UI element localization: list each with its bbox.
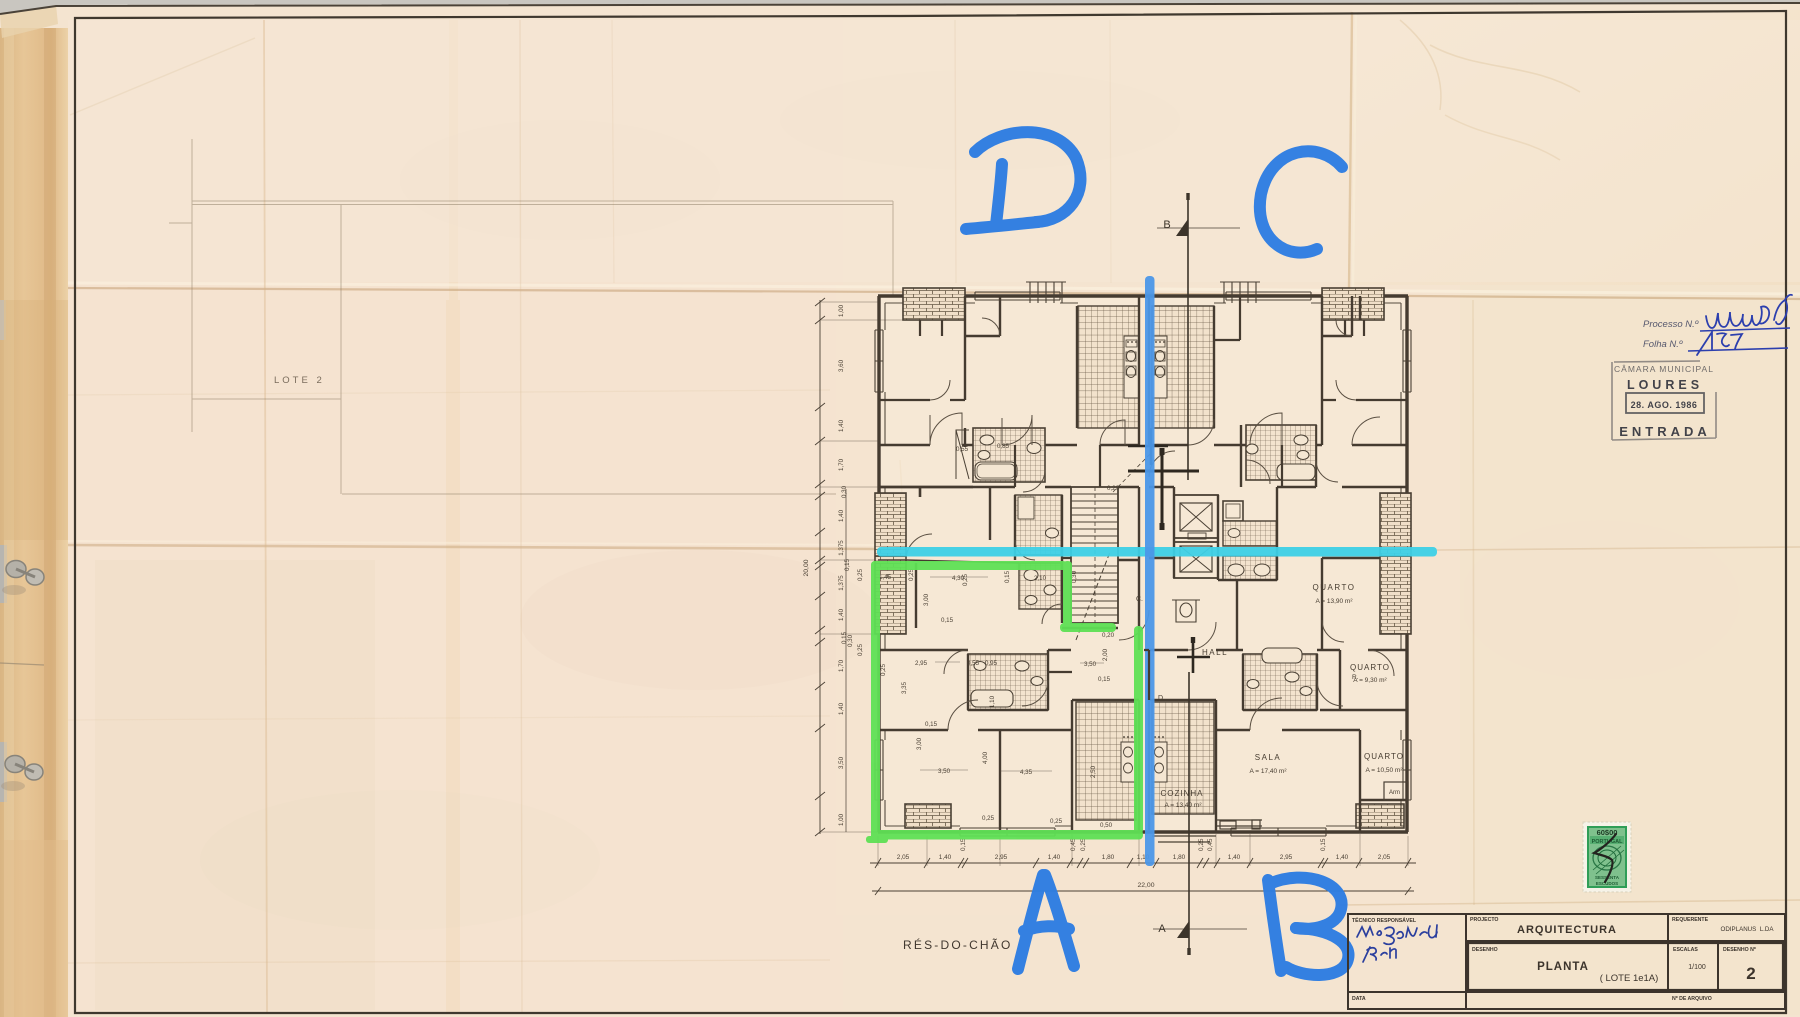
svg-text:0,25: 0,25 [857, 568, 864, 581]
svg-text:SALA: SALA [1255, 753, 1281, 762]
svg-text:4,00: 4,00 [982, 751, 989, 764]
svg-text:0,55: 0,55 [956, 446, 969, 453]
svg-text:1,40: 1,40 [838, 702, 845, 715]
svg-text:0,25: 0,25 [880, 663, 887, 676]
svg-text:2,05: 2,05 [897, 854, 910, 861]
svg-text:2,10: 2,10 [1034, 575, 1047, 582]
svg-text:1,375: 1,375 [838, 540, 845, 556]
svg-text:1,80: 1,80 [1102, 854, 1115, 861]
svg-text:PLANTA: PLANTA [1537, 961, 1589, 973]
svg-text:ESCUDOS: ESCUDOS [1596, 881, 1618, 886]
svg-text:1,40: 1,40 [1228, 854, 1241, 861]
svg-text:1,70: 1,70 [838, 659, 845, 672]
svg-text:DESENHO Nº: DESENHO Nº [1723, 947, 1756, 953]
svg-text:3,35: 3,35 [901, 681, 908, 694]
svg-text:3,50: 3,50 [838, 756, 845, 769]
svg-text:A: A [1158, 923, 1166, 935]
svg-text:QUARTO: QUARTO [1313, 583, 1356, 592]
svg-text:A = 10,50 m²: A = 10,50 m² [1365, 767, 1403, 774]
svg-text:4,35: 4,35 [1020, 769, 1033, 776]
svg-text:A = 13,90 m²: A = 13,90 m² [1315, 598, 1353, 605]
svg-text:0,25: 0,25 [908, 568, 915, 581]
svg-text:QUARTO: QUARTO [1350, 663, 1390, 672]
svg-text:28. AGO. 1986: 28. AGO. 1986 [1631, 400, 1698, 410]
svg-text:QUARTO: QUARTO [1364, 752, 1404, 761]
svg-text:ODIPLANUS L.DA: ODIPLANUS L.DA [1721, 926, 1775, 933]
svg-text:0,20: 0,20 [1107, 485, 1120, 492]
svg-text:Folha N.º: Folha N.º [1643, 339, 1683, 350]
svg-text:2,05: 2,05 [1378, 854, 1391, 861]
svg-text:2: 2 [1746, 964, 1755, 983]
svg-text:0,15: 0,15 [1098, 676, 1111, 683]
svg-text:R.: R. [1352, 674, 1359, 681]
svg-text:1,40: 1,40 [838, 608, 845, 621]
svg-text:Arm: Arm [1389, 790, 1400, 796]
svg-text:22,00: 22,00 [1137, 882, 1154, 889]
svg-text:0,55: 0,55 [967, 660, 980, 667]
svg-text:0,30: 0,30 [841, 485, 848, 498]
svg-text:2,00: 2,00 [1102, 648, 1109, 661]
svg-text:3,00: 3,00 [916, 737, 923, 750]
svg-text:1,10: 1,10 [989, 695, 996, 708]
svg-text:0,25: 0,25 [857, 643, 864, 656]
svg-text:0,15: 0,15 [1320, 838, 1327, 851]
svg-text:D.: D. [1158, 695, 1165, 702]
svg-text:1,00: 1,00 [838, 813, 845, 826]
svg-text:A = 13,40 m²: A = 13,40 m² [1164, 802, 1202, 809]
svg-text:0,30: 0,30 [1071, 570, 1078, 583]
svg-text:1,40: 1,40 [1048, 854, 1061, 861]
svg-text:0,25: 0,25 [1080, 838, 1087, 851]
svg-text:2,95: 2,95 [1280, 854, 1293, 861]
svg-text:REQUERENTE: REQUERENTE [1672, 917, 1709, 923]
svg-text:COZINHA: COZINHA [1161, 789, 1204, 798]
svg-text:ENTRADA: ENTRADA [1619, 424, 1711, 439]
svg-text:0,15: 0,15 [960, 838, 967, 851]
svg-text:0,45: 0,45 [1207, 838, 1214, 851]
svg-text:0,15: 0,15 [844, 558, 851, 571]
svg-text:0,15: 0,15 [925, 721, 938, 728]
svg-text:0,25: 0,25 [982, 815, 995, 822]
svg-text:Processo N.º: Processo N.º [1643, 319, 1699, 330]
svg-text:1/100: 1/100 [1688, 964, 1706, 971]
svg-text:DESENHO: DESENHO [1472, 947, 1498, 953]
svg-text:3,50: 3,50 [938, 768, 951, 775]
svg-text:TÉCNICO RESPONSÁVEL: TÉCNICO RESPONSÁVEL [1352, 916, 1417, 924]
svg-text:LOURES: LOURES [1627, 378, 1703, 392]
svg-text:1,40: 1,40 [838, 419, 845, 432]
svg-text:0,15: 0,15 [941, 617, 954, 624]
svg-text:PROJECTO: PROJECTO [1470, 917, 1498, 923]
svg-text:1,40: 1,40 [1336, 854, 1349, 861]
svg-text:0,20: 0,20 [1102, 632, 1115, 639]
svg-text:0,45: 0,45 [1070, 838, 1077, 851]
svg-text:2,50: 2,50 [1090, 765, 1097, 778]
svg-text:0,15: 0,15 [1004, 570, 1011, 583]
svg-text:DATA: DATA [1352, 996, 1366, 1002]
svg-text:1,40: 1,40 [838, 509, 845, 522]
svg-text:1,40: 1,40 [939, 854, 952, 861]
svg-text:A = 17,40 m²: A = 17,40 m² [1249, 768, 1287, 775]
svg-text:1,80: 1,80 [1173, 854, 1186, 861]
svg-text:LOTE 2: LOTE 2 [274, 375, 325, 386]
svg-text:C.: C. [1136, 596, 1143, 603]
svg-text:3,00: 3,00 [923, 593, 930, 606]
svg-text:0,85: 0,85 [997, 443, 1010, 450]
svg-text:0,30: 0,30 [847, 634, 854, 647]
svg-text:CÂMARA MUNICIPAL: CÂMARA MUNICIPAL [1614, 364, 1714, 374]
svg-text:0,25: 0,25 [1198, 838, 1205, 851]
svg-text:2,95: 2,95 [995, 854, 1008, 861]
svg-text:Nº DE ARQUIVO: Nº DE ARQUIVO [1672, 996, 1712, 1002]
svg-text:0,25: 0,25 [1050, 818, 1063, 825]
svg-text:1,70: 1,70 [838, 458, 845, 471]
svg-text:3,50: 3,50 [1084, 661, 1097, 668]
svg-text:HALL: HALL [1202, 648, 1228, 657]
svg-text:0,95: 0,95 [985, 660, 998, 667]
svg-text:( LOTE 1e1A): ( LOTE 1e1A) [1600, 973, 1659, 984]
svg-text:2,95: 2,95 [915, 660, 928, 667]
svg-text:1,45: 1,45 [879, 574, 892, 581]
svg-text:0,25: 0,25 [962, 573, 969, 586]
svg-text:1,00: 1,00 [838, 304, 845, 317]
svg-text:1,375: 1,375 [838, 575, 845, 591]
svg-text:B: B [1163, 219, 1170, 231]
svg-text:3,60: 3,60 [838, 359, 845, 372]
svg-text:0,50: 0,50 [1100, 822, 1113, 829]
svg-text:RÉS-DO-CHÃO: RÉS-DO-CHÃO [903, 937, 1013, 952]
svg-text:ESCALAS: ESCALAS [1673, 947, 1698, 953]
svg-text:ARQUITECTURA: ARQUITECTURA [1517, 924, 1617, 936]
svg-text:20,00: 20,00 [803, 559, 810, 576]
